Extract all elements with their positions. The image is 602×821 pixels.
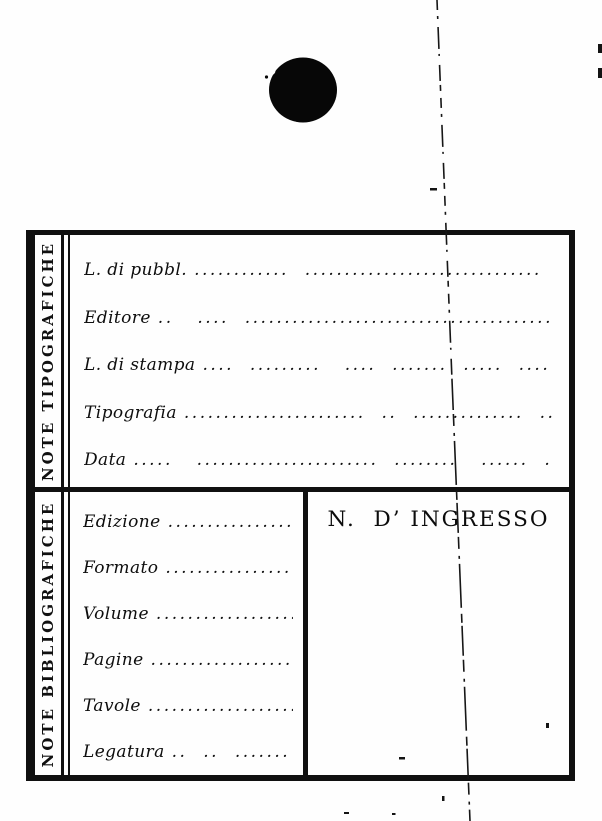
field-label: Editore bbox=[84, 295, 151, 343]
scanned-catalog-card: NOTE TIPOGRAFICHE L. di pubbl. .........… bbox=[0, 0, 602, 821]
field-l-di-pubbl: L. di pubbl. ............ ..............… bbox=[84, 247, 553, 295]
dotted-line: ...................... bbox=[168, 499, 293, 545]
double-rule-top bbox=[61, 235, 70, 487]
field-label: Volume bbox=[83, 591, 149, 637]
field-data: Data ..... ....................... .....… bbox=[84, 437, 553, 485]
tipografiche-fields: L. di pubbl. ............ ..............… bbox=[70, 235, 569, 487]
ingresso-header: N. D’ INGRESSO bbox=[308, 507, 569, 532]
bibliografiche-fields: Edizione ...................... Formato … bbox=[70, 492, 303, 775]
field-label: L. di pubbl. bbox=[84, 247, 187, 295]
field-label: Legatura bbox=[83, 729, 165, 775]
dotted-line: ..... ....................... ........ .… bbox=[133, 437, 553, 485]
field-editore: Editore .. .... ........................… bbox=[84, 295, 553, 343]
field-volume: Volume ...................... bbox=[83, 591, 293, 637]
field-edizione: Edizione ...................... bbox=[83, 499, 293, 545]
dotted-line: .. .. ....... ..... bbox=[172, 729, 293, 775]
field-label: Tipografia bbox=[84, 390, 177, 438]
dotted-line: ..................... bbox=[148, 683, 293, 729]
field-label: L. di stampa bbox=[84, 342, 195, 390]
dotted-line: ...................... bbox=[156, 591, 293, 637]
field-label: Data bbox=[84, 437, 126, 485]
dotted-line: ............ ...........................… bbox=[194, 247, 553, 295]
side-label-note-bibliografiche: NOTE BIBLIOGRAFICHE bbox=[39, 500, 57, 767]
double-rule-bottom bbox=[61, 492, 70, 775]
ingresso-cell: N. D’ INGRESSO bbox=[308, 492, 569, 775]
dotted-line: ....................... .. .............… bbox=[184, 390, 553, 438]
dotted-line: ..................... bbox=[151, 637, 293, 683]
field-label: Pagine bbox=[83, 637, 144, 683]
side-label-note-tipografiche: NOTE TIPOGRAFICHE bbox=[39, 241, 57, 481]
dotted-line: .. .... ................................… bbox=[158, 295, 553, 343]
dotted-line: ..................... bbox=[165, 545, 293, 591]
section-note-bibliografiche: NOTE BIBLIOGRAFICHE Edizione ...........… bbox=[35, 492, 569, 775]
field-pagine: Pagine ..................... bbox=[83, 637, 293, 683]
field-legatura: Legatura .. .. ....... ..... bbox=[83, 729, 293, 775]
side-label-column-top: NOTE TIPOGRAFICHE bbox=[35, 235, 61, 487]
catalog-card-form: NOTE TIPOGRAFICHE L. di pubbl. .........… bbox=[26, 230, 575, 781]
field-label: Edizione bbox=[83, 499, 161, 545]
field-label: Formato bbox=[83, 545, 158, 591]
section-note-tipografiche: NOTE TIPOGRAFICHE L. di pubbl. .........… bbox=[35, 235, 569, 487]
field-label: Tavole bbox=[83, 683, 141, 729]
field-tavole: Tavole ..................... bbox=[83, 683, 293, 729]
side-label-column-bottom: NOTE BIBLIOGRAFICHE bbox=[35, 492, 61, 775]
dotted-line: .... ......... .... ....... ..... .... .… bbox=[202, 342, 553, 390]
field-formato: Formato ..................... bbox=[83, 545, 293, 591]
field-tipografia: Tipografia ....................... .. ..… bbox=[84, 390, 553, 438]
ink-blot-icon bbox=[265, 58, 337, 126]
field-l-di-stampa: L. di stampa .... ......... .... .......… bbox=[84, 342, 553, 390]
